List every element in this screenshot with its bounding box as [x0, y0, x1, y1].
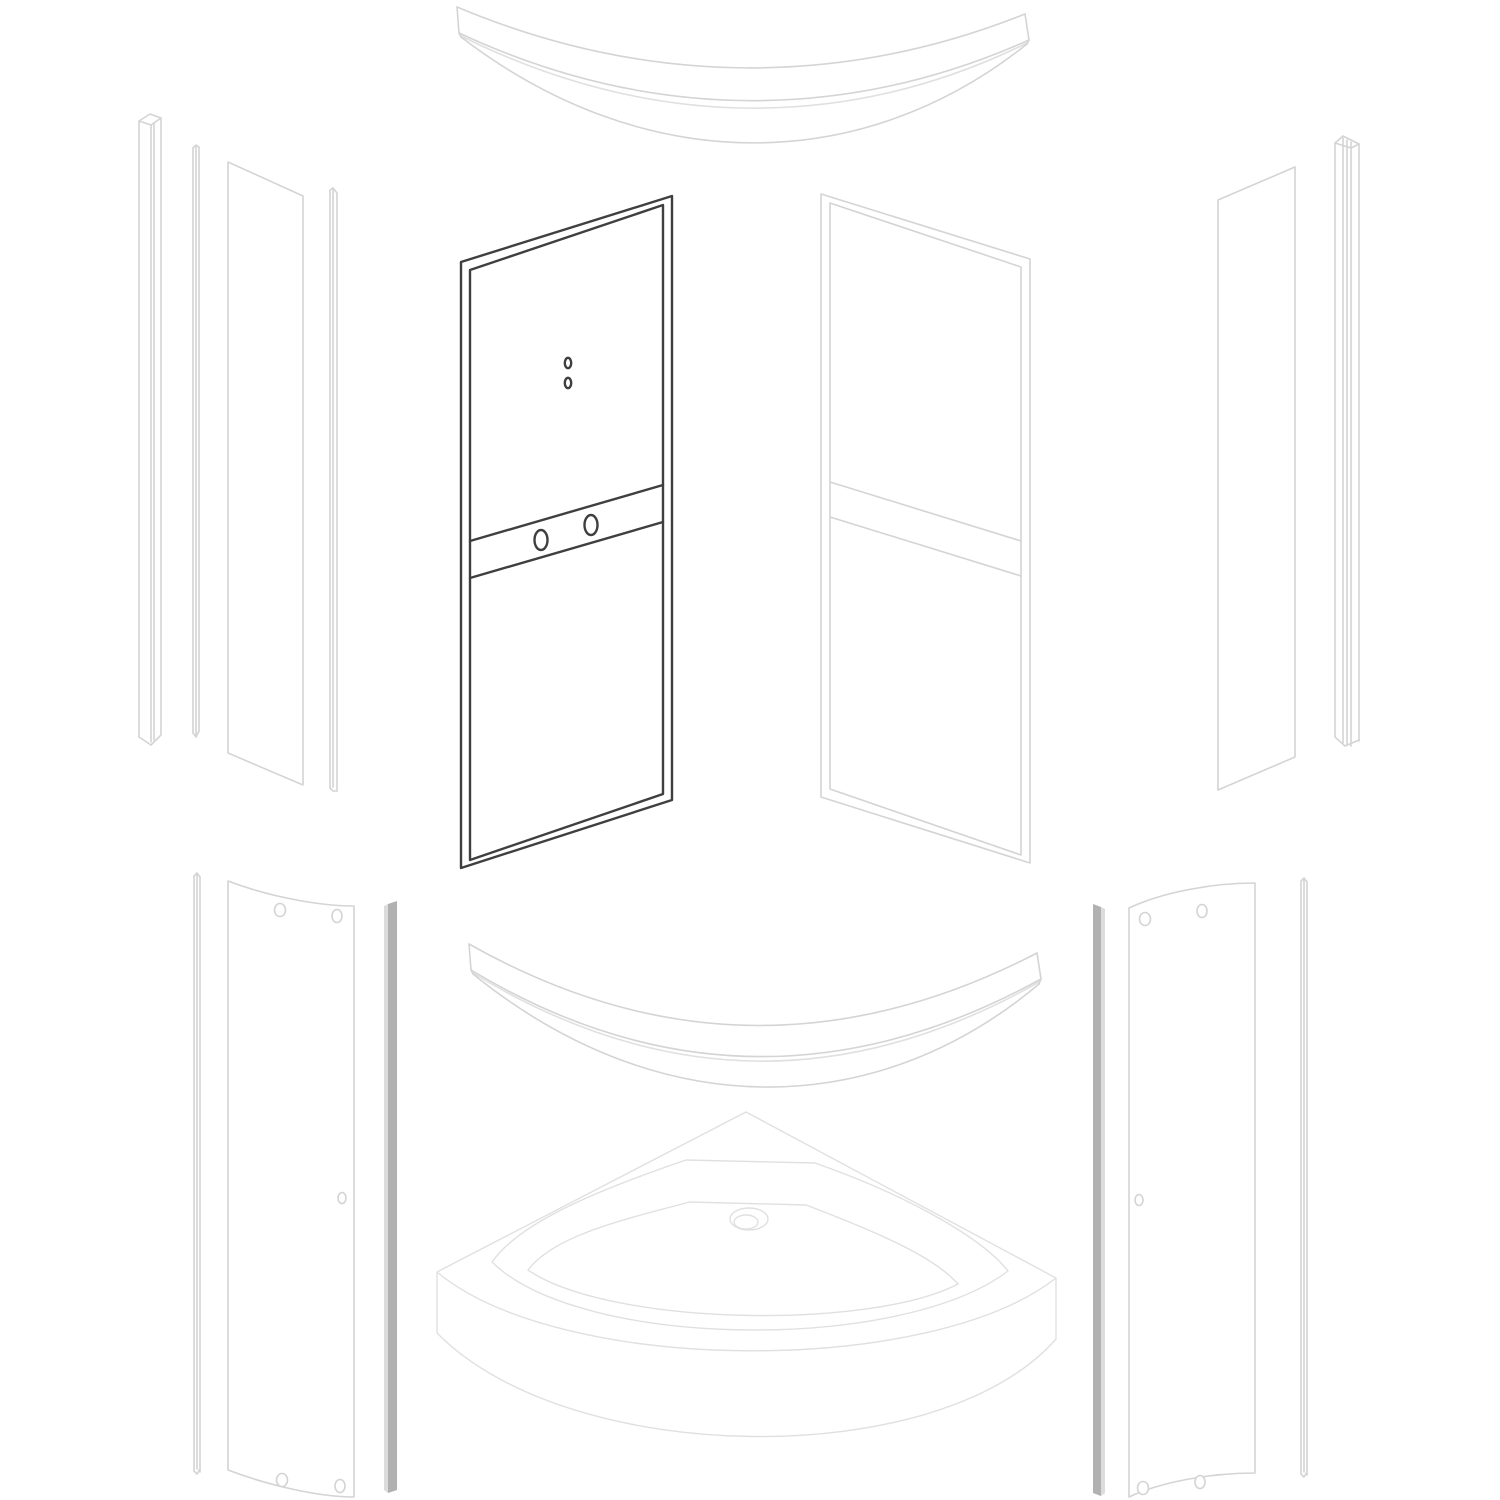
door-outer-frame — [821, 194, 1030, 863]
curved-panel-outline — [1129, 883, 1255, 1497]
strip-edges — [193, 146, 199, 735]
part-bottom-right-handle-bar[interactable]: bottom right handle bar — [1093, 904, 1105, 1496]
part-left-side-panel[interactable]: left fixed side glass panel — [228, 162, 303, 785]
part-bottom-right-seal-strip[interactable]: bottom right seal strip — [1301, 878, 1307, 1477]
part-shower-tray[interactable]: quadrant shower tray with drain — [437, 1112, 1056, 1437]
part-left-seal-strip[interactable]: left seal strip — [193, 145, 199, 737]
mounting-hole — [335, 1480, 345, 1493]
part-bottom-right-curved-glass-panel[interactable]: bottom right curved glass door panel — [1129, 883, 1255, 1497]
diagram-canvas: top curved rail left wall profile left s… — [0, 0, 1500, 1500]
mounting-hole — [1195, 1476, 1205, 1489]
rail-mid-edge — [471, 970, 1041, 1057]
profile-edges — [1335, 138, 1359, 746]
mounting-hole — [1138, 1482, 1149, 1495]
rail-bottom-edge — [461, 37, 1027, 143]
part-bottom-left-curved-glass-panel[interactable]: bottom left curved glass door panel — [228, 881, 354, 1497]
bar-body — [388, 901, 397, 1493]
mounting-hole — [1140, 913, 1151, 926]
strip-bottom-cap — [330, 788, 337, 791]
rail-bottom-edge — [473, 974, 1039, 1087]
side-panel-outline — [1218, 167, 1295, 790]
strip-edges — [194, 874, 200, 1472]
part-left-magnet-strip[interactable]: left magnet strip — [330, 188, 337, 791]
strip-edges — [330, 189, 337, 791]
part-top-curved-rail[interactable]: top curved rail — [457, 7, 1029, 143]
side-panel-outline — [228, 162, 303, 785]
drain-inner — [734, 1215, 758, 1229]
mounting-hole — [1197, 905, 1207, 918]
part-bottom-left-seal-strip[interactable]: bottom left seal strip — [194, 873, 200, 1474]
profile-edges — [139, 118, 161, 742]
mounting-hole — [1135, 1195, 1143, 1206]
profile-bottom-cap — [139, 735, 161, 745]
bar-body — [1093, 904, 1101, 1496]
rail-right-cap — [1025, 14, 1029, 44]
mounting-hole — [332, 910, 342, 923]
part-framed-door-panel-right[interactable]: framed door panel right — [821, 194, 1030, 863]
mounting-hole — [338, 1193, 346, 1204]
exploded-diagram: top curved rail left wall profile left s… — [0, 0, 1500, 1500]
profile-top-cap — [139, 114, 161, 125]
bar-light-edge — [1101, 907, 1105, 1496]
part-left-wall-profile[interactable]: left wall profile — [139, 114, 161, 745]
mounting-hole — [277, 1474, 288, 1487]
mounting-hole — [275, 904, 286, 917]
bar-light-edge — [384, 904, 388, 1493]
rail-left-cap — [457, 7, 461, 37]
rail-left-cap — [469, 944, 473, 974]
strip-edges — [1301, 879, 1307, 1475]
curved-panel-outline — [228, 881, 354, 1497]
door-outer-frame — [461, 196, 672, 868]
part-framed-door-panel-left[interactable]: framed door panel left (highlighted) — [461, 196, 672, 868]
part-right-wall-profile[interactable]: right wall profile — [1335, 136, 1359, 746]
part-bottom-left-handle-bar[interactable]: bottom left handle bar — [384, 901, 397, 1493]
part-right-side-panel[interactable]: right fixed side glass panel — [1218, 167, 1295, 790]
rail-top-edge — [457, 7, 1025, 68]
part-bottom-curved-rail[interactable]: bottom curved rail — [469, 944, 1041, 1087]
